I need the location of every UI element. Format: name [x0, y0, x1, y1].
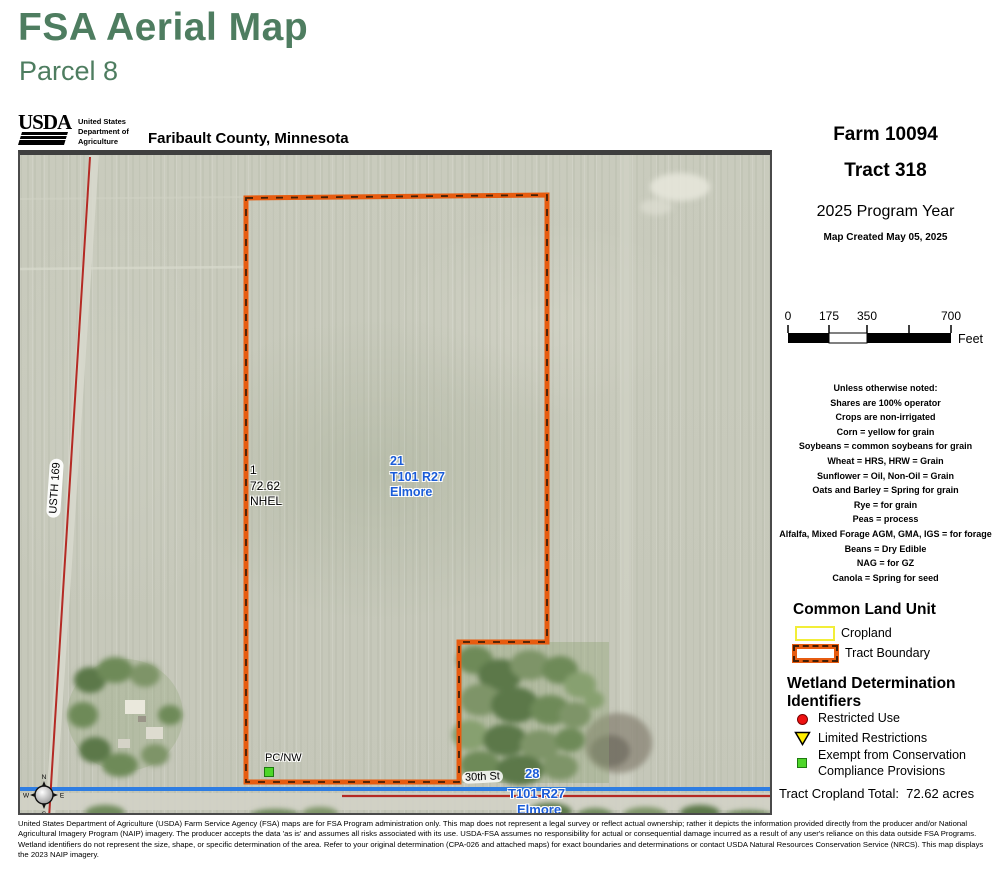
- exempt-square-icon: [797, 758, 807, 768]
- woods-notch: [452, 642, 609, 785]
- legend-exempt-label: Exempt from Conservation Compliance Prov…: [818, 748, 966, 779]
- section-28-number: 28: [525, 766, 539, 781]
- legend-cropland-label: Cropland: [841, 626, 892, 640]
- note-line: Wheat = HRS, HRW = Grain: [775, 454, 996, 469]
- agency-line-2: Department of: [78, 127, 129, 137]
- legend-clu-title: Common Land Unit: [793, 601, 936, 619]
- field-label: 1 72.62 NHEL: [250, 463, 282, 510]
- legend-wetland-title: Wetland Determination Identifiers: [787, 675, 956, 711]
- tract-boundary-swatch-icon: [792, 644, 839, 663]
- field-hel-code: NHEL: [250, 494, 282, 510]
- note-line: Alfalfa, Mixed Forage AGM, GMA, IGS = fo…: [775, 527, 996, 542]
- scale-bar: 0 175 350 700 Feet: [778, 306, 998, 352]
- note-line: Oats and Barley = Spring for grain: [775, 483, 996, 498]
- legend-tract-boundary-label: Tract Boundary: [845, 646, 930, 660]
- note-line: Canola = Spring for seed: [775, 571, 996, 586]
- legend-exempt-line2: Compliance Provisions: [818, 764, 966, 780]
- scale-tick-700: 700: [941, 309, 961, 323]
- note-line: Sunflower = Oil, Non-Oil = Grain: [775, 469, 996, 484]
- legend-restricted-label: Restricted Use: [818, 711, 900, 725]
- aerial-map: N E S W USTH 169 1 72.62 NHEL 21 T101 R2…: [18, 150, 772, 815]
- disclaimer-text: United States Department of Agriculture …: [18, 819, 988, 861]
- county-title: Faribault County, Minnesota: [148, 130, 349, 147]
- legend-exempt-line1: Exempt from Conservation: [818, 748, 966, 764]
- note-line: Soybeans = common soybeans for grain: [775, 439, 996, 454]
- map-notes: Unless otherwise noted: Shares are 100% …: [775, 381, 996, 585]
- legend-limited-label: Limited Restrictions: [818, 731, 927, 745]
- page-title: FSA Aerial Map: [18, 6, 308, 50]
- note-line: Rye = for grain: [775, 498, 996, 513]
- note-line: Shares are 100% operator: [775, 396, 996, 411]
- map-created-date: Map Created May 05, 2025: [775, 232, 996, 243]
- tract-number: Tract 318: [775, 160, 996, 182]
- compass-e: E: [60, 793, 65, 800]
- usda-swoosh-icon: [18, 132, 68, 145]
- note-line: Corn = yellow for grain: [775, 425, 996, 440]
- note-line: NAG = for GZ: [775, 556, 996, 571]
- restricted-use-dot-icon: [797, 714, 808, 725]
- compass-s: S: [42, 811, 47, 815]
- note-line: Unless otherwise noted:: [775, 381, 996, 396]
- note-line: Peas = process: [775, 512, 996, 527]
- page-subtitle: Parcel 8: [19, 56, 118, 87]
- section-21-label: 21 T101 R27 Elmore: [390, 454, 445, 501]
- compass-w: W: [23, 793, 30, 800]
- note-line: Beans = Dry Edible: [775, 542, 996, 557]
- street-label: 30th St: [462, 770, 503, 784]
- agency-name: United States Department of Agriculture: [78, 117, 129, 147]
- section-21-township: T101 R27: [390, 470, 445, 486]
- section-21-town: Elmore: [390, 485, 445, 501]
- agency-line-1: United States: [78, 117, 129, 127]
- scale-tick-0: 0: [785, 309, 792, 323]
- field-number: 1: [250, 463, 282, 479]
- wetland-exempt-marker-icon: [264, 767, 274, 777]
- scale-tick-175: 175: [819, 309, 839, 323]
- section-28-town: Elmore: [517, 802, 561, 815]
- cropland-swatch-icon: [795, 626, 835, 641]
- scale-tick-350: 350: [857, 309, 877, 323]
- tract-cropland-total: Tract Cropland Total: 72.62 acres: [779, 786, 974, 801]
- note-line: Crops are non-irrigated: [775, 410, 996, 425]
- section-21-number: 21: [390, 454, 445, 470]
- wetland-pcnw-label: PC/NW: [265, 752, 302, 764]
- agency-line-3: Agriculture: [78, 137, 129, 147]
- program-year: 2025 Program Year: [775, 203, 996, 221]
- limited-restrictions-triangle-icon: [794, 731, 811, 746]
- legend-wetland-title-line2: Identifiers: [787, 693, 956, 711]
- section-28-township: T101 R27: [508, 786, 565, 801]
- compass-n: N: [42, 774, 47, 781]
- field-acres: 72.62: [250, 479, 282, 495]
- scale-unit: Feet: [958, 332, 984, 346]
- farm-number: Farm 10094: [775, 124, 996, 146]
- legend-wetland-title-line1: Wetland Determination: [787, 675, 956, 693]
- farmstead: [67, 657, 183, 777]
